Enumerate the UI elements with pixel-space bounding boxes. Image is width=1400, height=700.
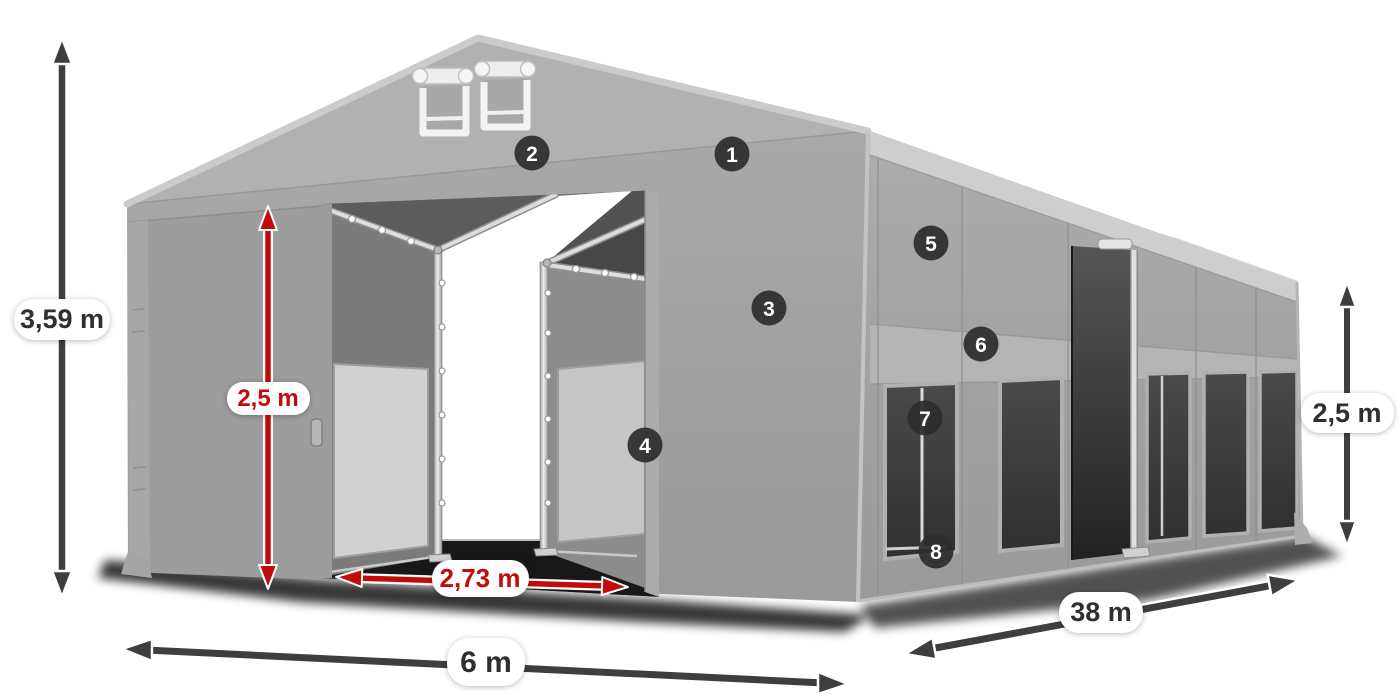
callout-badge-1: 1: [715, 137, 750, 172]
side-window: [1260, 371, 1297, 531]
right-jamb-trim: [645, 190, 659, 597]
callout-badge-4: 4: [628, 428, 663, 463]
svg-text:4: 4: [639, 435, 651, 458]
door-handle: [311, 419, 322, 446]
svg-text:8: 8: [930, 541, 942, 564]
side-height-label: 2,5 m: [1312, 398, 1381, 428]
side-window: [1000, 378, 1062, 551]
entrance-width-label: 2,73 m: [440, 563, 521, 593]
total-height-label: 3,59 m: [20, 304, 104, 334]
far-corner-flare: [1294, 512, 1313, 545]
side-window: [1147, 373, 1190, 542]
svg-text:3: 3: [763, 298, 775, 321]
left-jamb-trim: [321, 204, 332, 578]
entrance-opening: [321, 190, 660, 597]
roof-vent: [413, 68, 474, 133]
svg-text:1: 1: [726, 144, 738, 167]
side-door-base-plate: [1122, 547, 1150, 558]
svg-text:2: 2: [526, 143, 538, 166]
callout-badge-7: 7: [908, 401, 943, 436]
tent-length-label: 38 m: [1070, 597, 1132, 627]
tent-diagram-svg: 3,59 m 2,5 m 2,73 m 6 m: [0, 0, 1400, 700]
svg-text:6: 6: [975, 334, 987, 357]
rolled-door-curtain: [1098, 239, 1132, 249]
side-wall: [858, 131, 1313, 602]
dimension-side-height: 2,5 m: [1301, 282, 1394, 546]
callout-badge-8: 8: [919, 534, 954, 569]
tent-width-label: 6 m: [460, 646, 512, 679]
roof-vent: [475, 61, 536, 127]
entrance-height-label: 2,5 m: [237, 385, 298, 412]
tent-diagram-canvas: 3,59 m 2,5 m 2,73 m 6 m: [0, 0, 1400, 700]
corner-strip: [128, 220, 150, 570]
callout-badge-3: 3: [752, 291, 787, 326]
dimension-total-height: 3,59 m: [14, 38, 110, 597]
svg-text:5: 5: [925, 233, 937, 256]
front-face: [121, 38, 868, 602]
callout-badge-5: 5: [914, 226, 949, 261]
dimension-tent-width: 6 m: [122, 638, 848, 694]
callout-badge-6: 6: [964, 327, 999, 362]
side-window: [1204, 372, 1248, 536]
callout-badge-2: 2: [515, 136, 550, 171]
svg-text:7: 7: [919, 408, 931, 431]
inner-left-window: [334, 364, 428, 558]
